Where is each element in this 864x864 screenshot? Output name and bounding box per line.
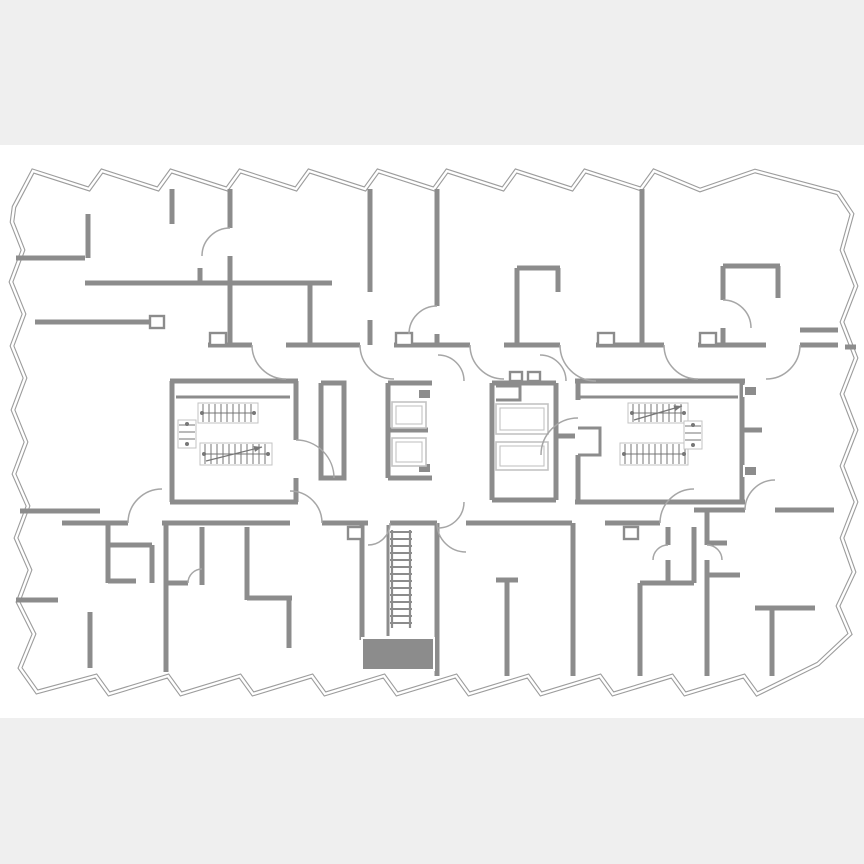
- stair-flight: [200, 443, 272, 465]
- stair-rail-dot: [682, 411, 686, 415]
- winder-rail-dot: [691, 443, 695, 447]
- elevator-car: [496, 442, 548, 470]
- door-threshold: [624, 527, 638, 539]
- door-threshold: [700, 333, 716, 345]
- stair-rail-dot: [266, 452, 270, 456]
- door-threshold: [348, 527, 362, 539]
- perimeter-wall: [11, 171, 856, 694]
- door-threshold: [528, 372, 540, 381]
- door-threshold: [150, 316, 164, 328]
- floor-plan: [0, 0, 864, 864]
- stair-rail-dot: [200, 411, 204, 415]
- stair-rail-dot: [630, 411, 634, 415]
- stair-flight: [628, 403, 688, 423]
- stair-flight: [198, 403, 258, 423]
- stair-rail-dot: [252, 411, 256, 415]
- wall-block: [418, 389, 431, 399]
- winder-rail-dot: [185, 442, 189, 446]
- stair-rail-dot: [682, 452, 686, 456]
- wall-block: [744, 386, 757, 396]
- stair-winder: [684, 421, 702, 449]
- door-threshold: [598, 333, 614, 345]
- wall-block: [744, 466, 757, 476]
- elevator-car: [392, 438, 426, 466]
- door-threshold: [396, 333, 412, 345]
- floor-plan-svg: [0, 0, 864, 864]
- stair-rail-dot: [622, 452, 626, 456]
- stair-flight: [620, 443, 688, 465]
- door-threshold: [510, 372, 522, 381]
- winder-rail-dot: [185, 422, 189, 426]
- stair-winder: [178, 420, 196, 448]
- stair-rail-dot: [202, 452, 206, 456]
- wall-block: [362, 638, 434, 670]
- door-threshold: [210, 333, 226, 345]
- winder-rail-dot: [691, 423, 695, 427]
- elevator-car: [392, 402, 426, 428]
- elevator-car: [496, 404, 548, 434]
